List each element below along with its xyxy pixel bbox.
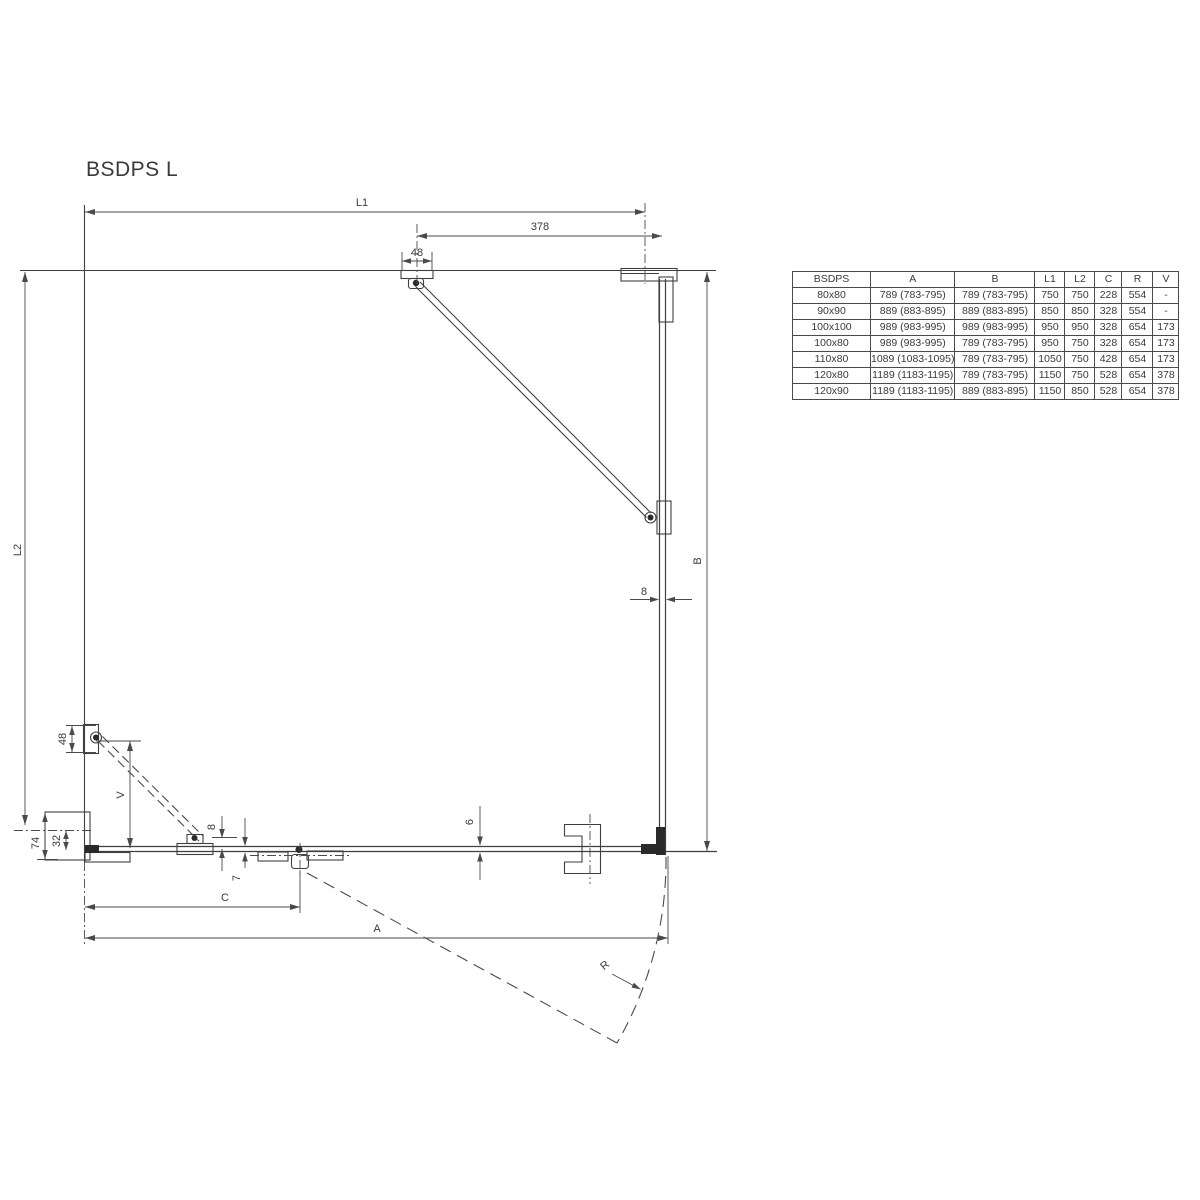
dimension-l2: L2: [12, 272, 28, 825]
dim-8r-arrow-right: [666, 597, 675, 603]
l2-arrow-top: [22, 272, 28, 282]
table-cell: 528: [1095, 384, 1122, 400]
size-spec-table: BSDPS A B L1 L2 C R V 80x80 789 (783-795…: [792, 271, 1179, 400]
table-cell: 100x100: [793, 320, 871, 336]
b-arrow-bottom: [704, 841, 710, 851]
l2-label: L2: [12, 544, 24, 556]
dim-48l-arrow-bottom: [69, 743, 75, 752]
table-cell: 789 (783-795): [955, 352, 1035, 368]
table-cell: 428: [1095, 352, 1122, 368]
dim-378-label: 378: [531, 221, 549, 233]
table-header-cell: L2: [1065, 272, 1095, 288]
b-arrow-top: [704, 272, 710, 282]
table-cell: 750: [1035, 288, 1065, 304]
centerlines: [14, 203, 645, 944]
dimension-v: V: [96, 741, 141, 848]
table-cell: 850: [1065, 384, 1095, 400]
v-label: V: [115, 791, 127, 799]
table-cell: 378: [1153, 384, 1179, 400]
table-header-cell: B: [955, 272, 1035, 288]
table-cell: 1150: [1035, 368, 1065, 384]
a-label: A: [373, 923, 381, 935]
table-cell: 950: [1065, 320, 1095, 336]
table-cell: -: [1153, 304, 1179, 320]
table-cell: 120x80: [793, 368, 871, 384]
dim-6-label: 6: [464, 819, 476, 825]
dim-8r-label: 8: [641, 586, 647, 598]
c-label: C: [221, 892, 229, 904]
table-cell: 173: [1153, 352, 1179, 368]
table-cell: 328: [1095, 320, 1122, 336]
table-header-cell: R: [1122, 272, 1153, 288]
table-cell: 120x90: [793, 384, 871, 400]
bottom-right-corner-profile: [656, 827, 665, 855]
table-cell: 173: [1153, 320, 1179, 336]
dim-378-arrow-left: [417, 233, 427, 239]
dimension-32: 32: [51, 831, 69, 850]
support-bar-clamp-pivot-dot: [648, 515, 654, 521]
door-open-left-edge2: [103, 737, 204, 837]
dimension-7: 7: [231, 818, 248, 881]
table-header-cell: A: [871, 272, 955, 288]
support-bar-lower-edge: [416, 287, 647, 518]
table-cell: 950: [1035, 336, 1065, 352]
page-title: BSDPS L: [86, 158, 178, 182]
table-cell: 90x90: [793, 304, 871, 320]
table-cell: 989 (983-995): [955, 320, 1035, 336]
support-bar-upper-edge: [420, 282, 651, 513]
dimension-378: 378: [417, 221, 662, 239]
dimensions: L1 378 48 L: [12, 197, 710, 990]
table-row: 90x90 889 (883-895) 889 (883-895) 850 85…: [793, 304, 1179, 320]
table-cell: 173: [1153, 336, 1179, 352]
dim-6-arrow-down: [477, 837, 483, 846]
dimension-6: 6: [464, 806, 483, 880]
dim-7-arrow-down: [242, 837, 248, 846]
table-cell: 100x80: [793, 336, 871, 352]
table-cell: 889 (883-895): [955, 384, 1035, 400]
door-open-left-edge1: [98, 741, 199, 841]
table-cell: 654: [1122, 384, 1153, 400]
table-cell: 789 (783-795): [955, 368, 1035, 384]
table-cell: 889 (883-895): [955, 304, 1035, 320]
table-cell: 789 (783-795): [955, 336, 1035, 352]
dim-48t-arrow-right: [423, 258, 432, 264]
table-cell: 654: [1122, 320, 1153, 336]
dimension-c: C: [85, 870, 300, 913]
open-door-lower-hinge-base: [177, 844, 213, 855]
table-cell: 110x80: [793, 352, 871, 368]
a-arrow-left: [85, 935, 95, 941]
dimension-b: B: [692, 272, 710, 851]
dim-48l-arrow-top: [69, 726, 75, 735]
door-sill-segment-left: [258, 852, 288, 861]
dim-8b-arrow-down: [219, 829, 225, 838]
a-arrow-right: [658, 935, 668, 941]
door-open-outward-edge: [307, 873, 617, 1043]
dim-8b-arrow-up: [219, 849, 225, 858]
table-cell: 654: [1122, 352, 1153, 368]
dim-74-label: 74: [30, 837, 42, 849]
table-header-row: BSDPS A B L1 L2 C R V: [793, 272, 1179, 288]
bottom-left-corner-block: [85, 845, 99, 853]
table-cell: 1150: [1035, 384, 1065, 400]
table-cell: 750: [1065, 352, 1095, 368]
c-arrow-right: [290, 904, 300, 910]
dim-6-arrow-up: [477, 853, 483, 862]
dimension-l1: L1: [85, 197, 645, 215]
l1-arrow-right: [635, 209, 645, 215]
door-swing-arc: [617, 857, 666, 1043]
dim-7-label: 7: [231, 875, 243, 881]
r-leader-arrow: [632, 983, 642, 990]
table-cell: -: [1153, 288, 1179, 304]
table-cell: 528: [1095, 368, 1122, 384]
shower-enclosure-plan-drawing: L1 378 48 L: [0, 0, 1200, 1200]
table-cell: 554: [1122, 304, 1153, 320]
table-cell: 950: [1035, 320, 1065, 336]
dim-32-label: 32: [51, 835, 63, 847]
table-cell: 328: [1095, 304, 1122, 320]
dim-48l-label: 48: [57, 733, 69, 745]
technical-drawing-page: BSDPS L: [0, 0, 1200, 1200]
l1-label: L1: [356, 197, 368, 209]
table-cell: 850: [1065, 304, 1095, 320]
dim-7-arrow-up: [242, 853, 248, 862]
open-door-lower-hinge-dot: [192, 835, 198, 841]
table-cell: 654: [1122, 336, 1153, 352]
table-cell: 889 (883-895): [871, 304, 955, 320]
dim-74-arrow-bottom: [42, 850, 48, 859]
dim-74-arrow-top: [42, 813, 48, 822]
dim-32-arrow-top: [63, 831, 69, 839]
door-handle: [565, 825, 601, 874]
table-row: 100x80 989 (983-995) 789 (783-795) 950 7…: [793, 336, 1179, 352]
table-cell: 989 (983-995): [871, 320, 955, 336]
left-wall-hinge-dot: [93, 735, 99, 741]
table-row: 110x80 1089 (1083-1095) 789 (783-795) 10…: [793, 352, 1179, 368]
table-cell: 1050: [1035, 352, 1065, 368]
dimension-a: A: [85, 856, 668, 944]
l2-arrow-bottom: [22, 815, 28, 825]
table-header-cell: C: [1095, 272, 1122, 288]
dimension-8-right: 8: [630, 586, 692, 602]
door-pivot-dot: [296, 846, 303, 853]
table-cell: 1089 (1083-1095): [871, 352, 955, 368]
table-header-cell: V: [1153, 272, 1179, 288]
table-cell: 80x80: [793, 288, 871, 304]
table-row: 100x100 989 (983-995) 989 (983-995) 950 …: [793, 320, 1179, 336]
table-row: 120x80 1189 (1183-1195) 789 (783-795) 11…: [793, 368, 1179, 384]
dimension-r: R: [598, 959, 641, 990]
v-arrow-top: [127, 741, 133, 751]
bottom-left-profile-foot: [85, 853, 130, 863]
table-cell: 1189 (1183-1195): [871, 384, 955, 400]
table-cell: 789 (783-795): [871, 288, 955, 304]
r-label: R: [598, 959, 612, 973]
b-label: B: [692, 557, 704, 564]
table-cell: 750: [1065, 288, 1095, 304]
support-bar-wall-pivot-dot: [413, 280, 419, 286]
table-row: 120x90 1189 (1183-1195) 889 (883-895) 11…: [793, 384, 1179, 400]
table-row: 80x80 789 (783-795) 789 (783-795) 750 75…: [793, 288, 1179, 304]
table-cell: 750: [1065, 336, 1095, 352]
table-header-cell: BSDPS: [793, 272, 871, 288]
dim-378-arrow-right: [652, 233, 662, 239]
table-cell: 750: [1065, 368, 1095, 384]
walls: [20, 205, 716, 862]
table-cell: 989 (983-995): [871, 336, 955, 352]
glass-panels: [85, 279, 717, 855]
table-cell: 554: [1122, 288, 1153, 304]
dim-32-arrow-bottom: [63, 842, 69, 850]
door-swing: [98, 737, 666, 1044]
dim-8r-arrow-left: [650, 597, 659, 603]
table-cell: 1189 (1183-1195): [871, 368, 955, 384]
table-cell: 789 (783-795): [955, 288, 1035, 304]
table-cell: 328: [1095, 336, 1122, 352]
table-cell: 228: [1095, 288, 1122, 304]
l1-arrow-left: [85, 209, 95, 215]
dim-48t-arrow-left: [402, 258, 411, 264]
table-header-cell: L1: [1035, 272, 1065, 288]
table-cell: 850: [1035, 304, 1065, 320]
table-cell: 654: [1122, 368, 1153, 384]
table-cell: 378: [1153, 368, 1179, 384]
c-arrow-left: [85, 904, 95, 910]
dim-8b-label: 8: [206, 824, 218, 830]
dim-48t-label: 48: [411, 247, 423, 259]
